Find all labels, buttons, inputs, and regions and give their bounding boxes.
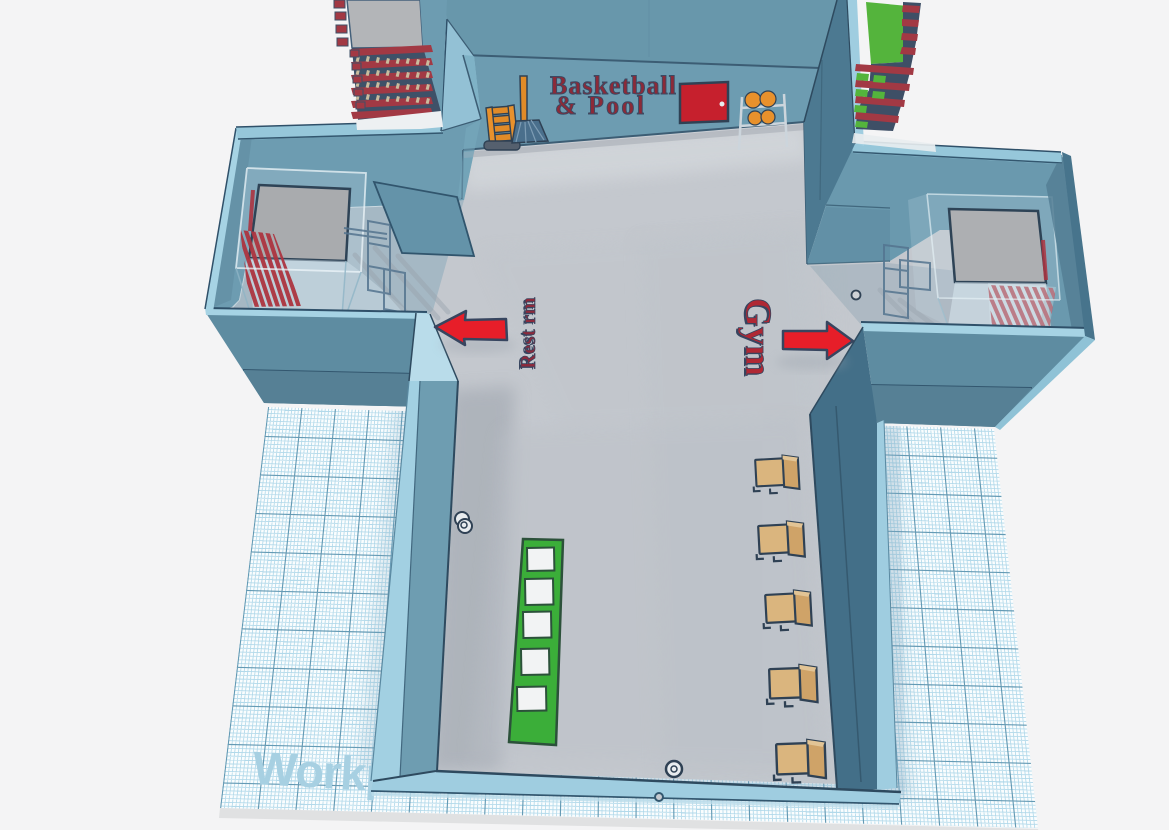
svg-text:Rest rm: Rest rm [516, 297, 540, 369]
svg-text:Gym: Gym [737, 298, 778, 376]
svg-text:& Pool: & Pool [555, 91, 644, 120]
